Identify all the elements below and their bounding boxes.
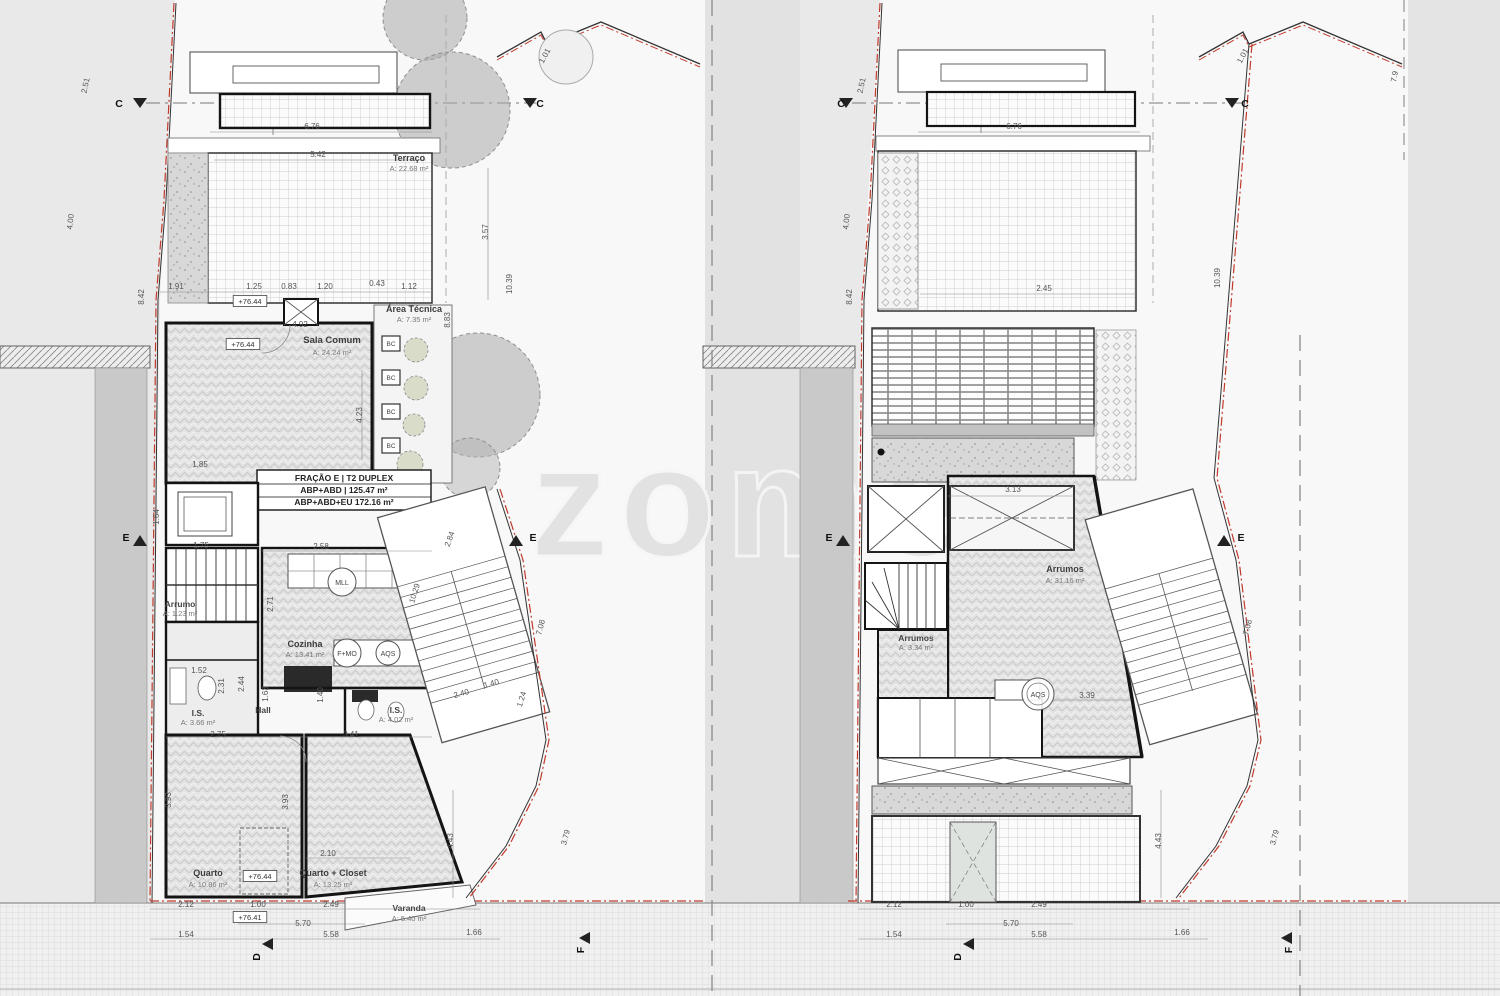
svg-text:2.75: 2.75 — [210, 730, 226, 739]
x-braced-band — [878, 758, 1130, 784]
svg-text:I.S.: I.S. — [390, 705, 403, 715]
svg-text:Hall: Hall — [255, 705, 271, 715]
elevation-marker: +76.44 — [243, 871, 277, 882]
svg-text:1.00: 1.00 — [250, 900, 266, 909]
svg-text:I.S.: I.S. — [192, 708, 205, 718]
svg-text:4.43: 4.43 — [1154, 833, 1163, 849]
dimension-label: 4.00 — [841, 213, 852, 230]
svg-text:D: D — [251, 953, 263, 961]
svg-text:MLL: MLL — [335, 580, 349, 587]
dimension-label: 8.83 — [443, 312, 452, 328]
svg-text:10.39: 10.39 — [505, 273, 514, 294]
svg-text:1.75: 1.75 — [193, 541, 209, 550]
room-label: I.S. — [390, 705, 403, 715]
svg-text:1.63: 1.63 — [261, 686, 270, 702]
dimension-label: 2.44 — [237, 676, 246, 692]
room-area-label: A: 3.34 m² — [899, 643, 934, 652]
svg-text:1.64: 1.64 — [152, 509, 161, 525]
svg-text:5.70: 5.70 — [1003, 919, 1019, 928]
svg-text:Quarto: Quarto — [193, 868, 223, 878]
dimension-label: 2.49 — [323, 900, 339, 909]
svg-text:1.25: 1.25 — [246, 282, 262, 291]
terrace-main — [208, 153, 432, 303]
dimension-label: 3.41 — [343, 730, 359, 739]
svg-text:1.52: 1.52 — [191, 666, 207, 675]
svg-text:2.71: 2.71 — [266, 596, 275, 612]
dimension-label: 2.58 — [313, 542, 329, 551]
svg-text:AQS: AQS — [1031, 692, 1046, 699]
svg-text:A: 4.02 m²: A: 4.02 m² — [379, 715, 414, 724]
svg-text:3.93: 3.93 — [164, 792, 173, 808]
room-area-label: A: 13.41 m² — [286, 650, 325, 659]
dimension-label: 4.00 — [65, 213, 76, 230]
svg-text:C: C — [536, 98, 544, 110]
section-marker: D — [251, 953, 263, 961]
svg-text:A: 3.34 m²: A: 3.34 m² — [899, 643, 934, 652]
svg-text:A: 10.86 m²: A: 10.86 m² — [189, 880, 228, 889]
svg-text:F: F — [575, 946, 587, 953]
room-label: Arrumos — [898, 633, 934, 643]
room-label: Quarto — [193, 868, 223, 878]
room-label: Arrumos — [1046, 564, 1084, 574]
room-label: Cozinha — [288, 639, 324, 649]
equipment-symbol: AQS — [376, 641, 400, 665]
svg-text:+76.44: +76.44 — [231, 340, 254, 349]
svg-text:5.70: 5.70 — [295, 919, 311, 928]
svg-text:1.66: 1.66 — [1174, 928, 1190, 937]
svg-text:6.76: 6.76 — [304, 122, 320, 131]
svg-text:4.00: 4.00 — [841, 213, 852, 230]
svg-text:5.58: 5.58 — [323, 930, 339, 939]
dimension-label: 1.00 — [958, 900, 974, 909]
toilet-icon — [198, 676, 216, 700]
elevation-marker: +76.44 — [226, 339, 260, 350]
dimension-label: 1.25 — [246, 282, 262, 291]
svg-text:Sala Comum: Sala Comum — [303, 335, 361, 346]
dimension-label: 6.76 — [304, 122, 320, 131]
dimension-label: 4.43 — [1154, 833, 1163, 849]
dimension-label: 3.13 — [1005, 485, 1021, 494]
dimension-label: 8.42 — [845, 289, 854, 305]
svg-text:1.66: 1.66 — [466, 928, 482, 937]
dimension-label: 4.43 — [446, 833, 455, 849]
svg-text:4.00: 4.00 — [65, 213, 76, 230]
svg-text:FRAÇÃO E | T2 DUPLEX: FRAÇÃO E | T2 DUPLEX — [295, 473, 394, 483]
svg-text:3.13: 3.13 — [1005, 485, 1021, 494]
svg-text:1.20: 1.20 — [317, 282, 333, 291]
dimension-label: 2.71 — [266, 596, 275, 612]
svg-text:0.43: 0.43 — [369, 279, 385, 288]
svg-text:Arrumos: Arrumos — [898, 633, 934, 643]
ac-unit-label: BC — [386, 375, 395, 382]
svg-text:A: 13.41 m²: A: 13.41 m² — [286, 650, 325, 659]
dimension-label: 3.57 — [481, 224, 490, 240]
gutter — [872, 424, 1094, 436]
svg-text:A: 13.25 m²: A: 13.25 m² — [314, 880, 353, 889]
svg-text:2.10: 2.10 — [320, 849, 336, 858]
svg-text:Área Técnica: Área Técnica — [386, 304, 443, 314]
svg-text:8.42: 8.42 — [137, 289, 146, 305]
svg-text:A: 1.23 m²: A: 1.23 m² — [163, 609, 198, 618]
room-area-label: A: 3.66 m² — [181, 718, 216, 727]
svg-text:3.39: 3.39 — [1079, 691, 1095, 700]
room-label: Hall — [255, 705, 271, 715]
dimension-label: 6.76 — [1006, 122, 1022, 131]
section-marker: D — [952, 953, 964, 961]
svg-text:AQS: AQS — [381, 651, 396, 658]
elevation-marker: +76.44 — [233, 296, 267, 307]
dimension-label: 2.45 — [1036, 284, 1052, 293]
dimension-label: 3.93 — [164, 792, 173, 808]
party-wall-hatch-left — [0, 346, 150, 368]
dimension-label: 1.40 — [316, 687, 325, 703]
section-marker: E — [122, 532, 129, 544]
dimension-label: 1.52 — [191, 666, 207, 675]
svg-text:3.57: 3.57 — [481, 224, 490, 240]
unit-info-line: ABP+ABD | 125.47 m² — [300, 485, 387, 495]
dimension-label: 2.12 — [178, 900, 194, 909]
svg-text:2.12: 2.12 — [178, 900, 194, 909]
svg-text:A: 22.68 m²: A: 22.68 m² — [390, 164, 429, 173]
roof-body — [865, 328, 1142, 902]
floor-plan-sheet: zome — [0, 0, 1500, 996]
dimension-label: 10.39 — [1213, 267, 1222, 288]
unit-info-line: ABP+ABD+EU 172.16 m² — [294, 497, 393, 507]
section-marker: F — [1283, 946, 1295, 953]
dimension-label: 1.00 — [250, 900, 266, 909]
svg-text:Varanda: Varanda — [392, 903, 425, 913]
planter-strip — [1096, 330, 1136, 480]
lower-terrace-white — [878, 698, 1042, 758]
section-marker: C — [1241, 98, 1249, 110]
room-area-label: A: 5.40 m² — [392, 914, 427, 923]
svg-text:A: 7.35 m²: A: 7.35 m² — [397, 315, 432, 324]
section-marker: C — [837, 98, 845, 110]
room-area-label: A: 4.02 m² — [379, 715, 414, 724]
equipment-symbol: AQS — [1022, 678, 1054, 710]
svg-text:8.42: 8.42 — [845, 289, 854, 305]
dimension-label: 1.54 — [178, 930, 194, 939]
concrete-band — [872, 786, 1132, 814]
svg-text:ABP+ABD+EU 172.16 m²: ABP+ABD+EU 172.16 m² — [294, 497, 393, 507]
dimension-label: 5.70 — [1003, 919, 1019, 928]
interior-stairs — [865, 563, 947, 629]
planter-strip — [168, 153, 208, 303]
dimension-label: 2.10 — [320, 849, 336, 858]
svg-text:2.12: 2.12 — [886, 900, 902, 909]
svg-text:1.12: 1.12 — [401, 282, 417, 291]
glazed-panel — [950, 822, 996, 902]
dimension-label: 1.20 — [317, 282, 333, 291]
room-area-label: A: 24.24 m² — [313, 348, 352, 357]
equipment-symbol: F+MO — [333, 639, 361, 667]
svg-text:BC: BC — [386, 409, 395, 416]
dimension-label: 3.93 — [281, 794, 290, 810]
neighbor-building-right — [800, 368, 853, 903]
room-area-label: A: 1.23 m² — [163, 609, 198, 618]
room-label: Área Técnica — [386, 304, 443, 314]
svg-text:5.42: 5.42 — [310, 150, 326, 159]
svg-text:F: F — [1283, 946, 1295, 953]
svg-text:2.49: 2.49 — [323, 900, 339, 909]
dimension-label: 4.23 — [355, 407, 364, 423]
svg-text:1.00: 1.00 — [958, 900, 974, 909]
dimension-label: 2.75 — [210, 730, 226, 739]
svg-text:2.31: 2.31 — [217, 678, 226, 694]
svg-text:BC: BC — [386, 341, 395, 348]
dimension-label: 5.58 — [1031, 930, 1047, 939]
svg-text:10.39: 10.39 — [1213, 267, 1222, 288]
svg-text:A: 31.16 m²: A: 31.16 m² — [1046, 576, 1085, 585]
dimension-label: 1.91 — [168, 282, 184, 291]
sink-icon — [358, 700, 374, 720]
room-label: Quarto + Closet — [299, 868, 366, 878]
svg-text:E: E — [1237, 532, 1244, 544]
svg-text:C: C — [115, 98, 123, 110]
dimension-label: 3.39 — [1079, 691, 1095, 700]
neighbor-building-left — [95, 368, 147, 903]
svg-text:2.49: 2.49 — [1031, 900, 1047, 909]
svg-text:8.83: 8.83 — [443, 312, 452, 328]
section-marker: E — [529, 532, 536, 544]
svg-text:BC: BC — [386, 443, 395, 450]
dimension-label: 2.31 — [217, 678, 226, 694]
svg-text:D: D — [952, 953, 964, 961]
svg-text:Cozinha: Cozinha — [288, 639, 324, 649]
section-marker: C — [115, 98, 123, 110]
dimension-label: 1.75 — [193, 541, 209, 550]
dimension-label: 1.54 — [886, 930, 902, 939]
svg-text:1.85: 1.85 — [192, 460, 208, 469]
svg-text:+76.44: +76.44 — [248, 872, 271, 881]
dimension-label: 5.42 — [310, 150, 326, 159]
svg-text:A: 5.40 m²: A: 5.40 m² — [392, 914, 427, 923]
room-sala-comum — [166, 323, 372, 483]
svg-text:Arrumo: Arrumo — [165, 599, 196, 609]
dimension-label: 1.85 — [192, 460, 208, 469]
svg-text:1.40: 1.40 — [316, 687, 325, 703]
party-wall-hatch-right — [703, 346, 855, 368]
section-marker: E — [825, 532, 832, 544]
svg-text:3.41: 3.41 — [343, 730, 359, 739]
svg-text:E: E — [122, 532, 129, 544]
svg-text:E: E — [825, 532, 832, 544]
svg-text:BC: BC — [386, 375, 395, 382]
dimension-label: 1.63 — [261, 686, 270, 702]
shower-icon — [170, 668, 186, 704]
dimension-label: 2.49 — [1031, 900, 1047, 909]
svg-text:A: 24.24 m²: A: 24.24 m² — [313, 348, 352, 357]
equipment-symbol: MLL — [328, 568, 356, 596]
dimension-label: 4.92 — [292, 320, 308, 329]
svg-text:6.76: 6.76 — [1006, 122, 1022, 131]
svg-text:2.45: 2.45 — [1036, 284, 1052, 293]
svg-text:Terraço: Terraço — [393, 153, 426, 163]
svg-text:5.58: 5.58 — [1031, 930, 1047, 939]
room-area-label: A: 7.35 m² — [397, 315, 432, 324]
dimension-label: 1.66 — [466, 928, 482, 937]
svg-text:4.43: 4.43 — [446, 833, 455, 849]
svg-text:4.92: 4.92 — [292, 320, 308, 329]
svg-text:0.83: 0.83 — [281, 282, 297, 291]
room-label: I.S. — [192, 708, 205, 718]
ac-unit-label: BC — [386, 341, 395, 348]
svg-text:1.54: 1.54 — [178, 930, 194, 939]
room-label: Varanda — [392, 903, 425, 913]
dimension-label: 5.70 — [295, 919, 311, 928]
lower-roof — [872, 816, 1140, 902]
svg-text:3.93: 3.93 — [281, 794, 290, 810]
elevation-marker: +76.41 — [233, 912, 267, 923]
dimension-label: 2.12 — [886, 900, 902, 909]
site-plan-drawing: zome — [0, 0, 1500, 996]
room-label: Sala Comum — [303, 335, 361, 346]
svg-text:F+MO: F+MO — [337, 651, 357, 658]
svg-text:C: C — [837, 98, 845, 110]
ac-unit-label: BC — [386, 443, 395, 450]
room-quarto — [166, 735, 302, 897]
sloped-roof-battens — [872, 328, 1094, 426]
svg-text:C: C — [1241, 98, 1249, 110]
section-marker: F — [575, 946, 587, 953]
planter-strip — [878, 153, 918, 309]
room-label: Terraço — [393, 153, 426, 163]
room-label: Arrumo — [165, 599, 196, 609]
unit-info-line: FRAÇÃO E | T2 DUPLEX — [295, 473, 394, 483]
section-marker: C — [536, 98, 544, 110]
svg-text:E: E — [529, 532, 536, 544]
svg-text:A: 3.66 m²: A: 3.66 m² — [181, 718, 216, 727]
dimension-label: 8.42 — [137, 289, 146, 305]
room-area-label: A: 13.25 m² — [314, 880, 353, 889]
road-strip-right — [1408, 0, 1500, 996]
room-area-label: A: 31.16 m² — [1046, 576, 1085, 585]
room-area-label: A: 10.86 m² — [189, 880, 228, 889]
svg-text:1.54: 1.54 — [886, 930, 902, 939]
svg-text:+76.44: +76.44 — [238, 297, 261, 306]
svg-text:4.23: 4.23 — [355, 407, 364, 423]
dimension-label: 5.58 — [323, 930, 339, 939]
svg-text:2.44: 2.44 — [237, 676, 246, 692]
terrace-upper — [220, 94, 430, 128]
svg-text:+76.41: +76.41 — [238, 913, 261, 922]
dimension-label: 0.83 — [281, 282, 297, 291]
room-area-label: A: 22.68 m² — [390, 164, 429, 173]
svg-text:Arrumos: Arrumos — [1046, 564, 1084, 574]
svg-text:2.58: 2.58 — [313, 542, 329, 551]
section-marker: E — [1237, 532, 1244, 544]
svg-text:Quarto + Closet: Quarto + Closet — [299, 868, 366, 878]
ac-unit-label: BC — [386, 409, 395, 416]
dimension-label: 1.64 — [152, 509, 161, 525]
dimension-label: 10.39 — [505, 273, 514, 294]
sidewalk — [0, 903, 1500, 996]
svg-text:ABP+ABD | 125.47 m²: ABP+ABD | 125.47 m² — [300, 485, 387, 495]
dimension-label: 1.66 — [1174, 928, 1190, 937]
dimension-label: 0.43 — [369, 279, 385, 288]
svg-text:1.91: 1.91 — [168, 282, 184, 291]
dimension-label: 1.12 — [401, 282, 417, 291]
